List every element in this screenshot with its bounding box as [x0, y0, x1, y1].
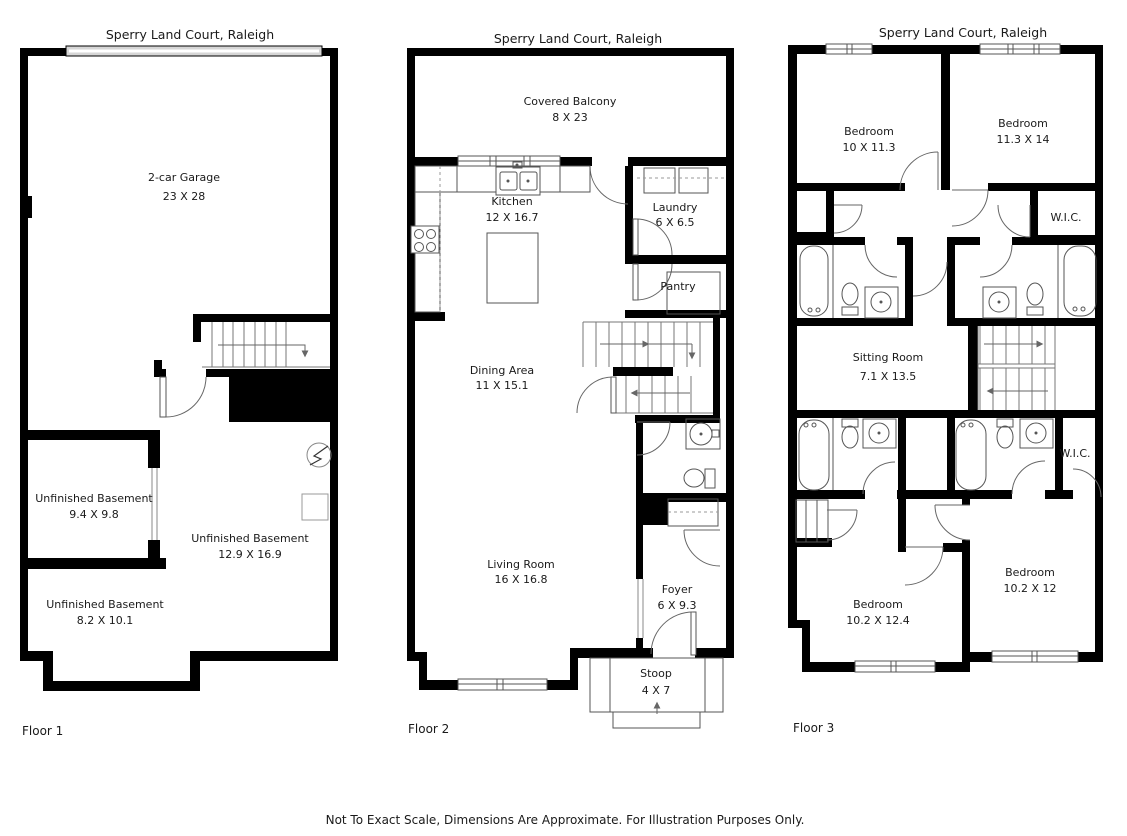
basement-lower-dims: 8.2 X 10.1	[77, 614, 134, 627]
hall-doors	[834, 152, 1030, 296]
garage-door	[66, 46, 322, 56]
foyer-door-arc	[684, 530, 720, 566]
closet-door-arc	[834, 205, 862, 233]
floorplan-canvas: Sperry Land Court, Raleigh	[0, 0, 1127, 836]
cased-opening	[152, 468, 157, 540]
bathroom-upper-left	[800, 245, 898, 318]
basement-small-label: Unfinished Basement	[35, 492, 153, 505]
wic-upper-label: W.I.C.	[1050, 211, 1081, 224]
kitchen-dims: 12 X 16.7	[485, 211, 538, 224]
foyer-label: Foyer	[662, 583, 693, 596]
utility-box-icon	[302, 494, 328, 520]
door-arc	[980, 245, 1012, 277]
floor2-caption: Floor 2	[408, 722, 449, 736]
door-arc	[160, 377, 206, 417]
door-arc	[827, 510, 857, 540]
dryer-icon	[679, 168, 708, 193]
toilet-icon	[842, 426, 858, 448]
bedroom-tl-label: Bedroom	[844, 125, 894, 138]
floor3-title: Sperry Land Court, Raleigh	[879, 25, 1047, 40]
floor-1-plan: Sperry Land Court, Raleigh	[20, 27, 338, 738]
balcony-dims: 8 X 23	[552, 111, 588, 124]
laundry-label: Laundry	[653, 201, 698, 214]
washer-icon	[644, 168, 675, 193]
bedroom-br-label: Bedroom	[1005, 566, 1055, 579]
basement-main-dims: 12.9 X 16.9	[218, 548, 282, 561]
toilet-icon	[997, 426, 1013, 448]
stove-icon	[411, 226, 439, 253]
kitchen-sink-icon	[496, 162, 540, 195]
bedroom3-door-arc	[905, 547, 943, 585]
balcony-label: Covered Balcony	[524, 95, 617, 108]
floor2-title: Sperry Land Court, Raleigh	[494, 31, 662, 46]
balcony-window	[458, 156, 560, 166]
bathtub-icon	[956, 420, 986, 490]
stairs-icon	[202, 322, 330, 367]
cased-opening	[638, 579, 643, 638]
toilet-icon	[842, 283, 858, 305]
door-arc	[863, 462, 895, 494]
living-room-window	[458, 679, 547, 690]
wic-door-arc	[998, 205, 1030, 237]
door-arc	[865, 245, 897, 277]
pantry-shelf	[667, 272, 720, 314]
bedroom-tr-dims: 11.3 X 14	[996, 133, 1049, 146]
sitting-label: Sitting Room	[853, 351, 924, 364]
bathroom-lower-left	[799, 418, 896, 494]
bathroom-upper-right	[980, 245, 1096, 318]
bedroom-bl-label: Bedroom	[853, 598, 903, 611]
closet-lower-left	[796, 500, 857, 542]
electrical-panel-icon	[307, 443, 331, 467]
floorplan-page: Sperry Land Court, Raleigh	[0, 0, 1127, 836]
floor-3-plan: Sperry Land Court, Raleigh	[788, 25, 1103, 735]
laundry-dims: 6 X 6.5	[655, 216, 694, 229]
balcony-door-arc	[590, 166, 628, 204]
kitchen-label: Kitchen	[491, 195, 532, 208]
stair-door-arc	[577, 377, 616, 413]
garage-label: 2-car Garage	[148, 171, 220, 184]
floor1-caption: Floor 1	[22, 724, 63, 738]
stairs-icon	[978, 326, 1055, 410]
bedroom1-door-arc	[900, 152, 938, 190]
dining-label: Dining Area	[470, 364, 534, 377]
foyer-dims: 6 X 9.3	[657, 599, 696, 612]
basement-main-label: Unfinished Basement	[191, 532, 309, 545]
laundry-appliances	[637, 168, 724, 193]
pantry-label: Pantry	[660, 280, 696, 293]
bathtub-icon	[799, 420, 829, 490]
bathroom-lower-right	[956, 419, 1053, 494]
bedroom-tr-label: Bedroom	[998, 117, 1048, 130]
bathtub-icon	[1064, 246, 1096, 316]
bedroom-tl-dims: 10 X 11.3	[842, 141, 895, 154]
disclaimer-text: Not To Exact Scale, Dimensions Are Appro…	[326, 813, 805, 827]
wic-lower-label: W.I.C.	[1059, 447, 1090, 460]
floor-2-plan: Sperry Land Court, Raleigh	[407, 31, 734, 736]
stoop-label: Stoop	[640, 667, 672, 680]
coat-closet	[668, 499, 718, 526]
floor3-walls	[788, 45, 1103, 672]
toilet-icon	[1027, 283, 1043, 305]
basement-small-dims: 9.4 X 9.8	[69, 508, 119, 521]
bedroom2-door-arc	[952, 190, 988, 226]
living-label: Living Room	[487, 558, 555, 571]
kitchen-island	[487, 233, 538, 303]
bedroom-bl-dims: 10.2 X 12.4	[846, 614, 910, 627]
sitting-dims: 7.1 X 13.5	[860, 370, 917, 383]
toilet-icon	[684, 469, 704, 487]
floor1-title: Sperry Land Court, Raleigh	[106, 27, 274, 42]
stoop-dims: 4 X 7	[642, 684, 671, 697]
basement-lower-label: Unfinished Basement	[46, 598, 164, 611]
garage-dims: 23 X 28	[163, 190, 206, 203]
front-door-arc	[651, 612, 696, 655]
hall-door-arc	[913, 262, 947, 296]
floor1-walls	[20, 48, 338, 691]
bedroom-br-dims: 10.2 X 12	[1003, 582, 1056, 595]
living-dims: 16 X 16.8	[494, 573, 547, 586]
floor3-caption: Floor 3	[793, 721, 834, 735]
door-arc	[1012, 461, 1045, 494]
dining-dims: 11 X 15.1	[475, 379, 528, 392]
bathtub-icon	[800, 246, 828, 316]
powder-room	[637, 419, 720, 488]
bedroom4-door-arc	[935, 505, 970, 540]
